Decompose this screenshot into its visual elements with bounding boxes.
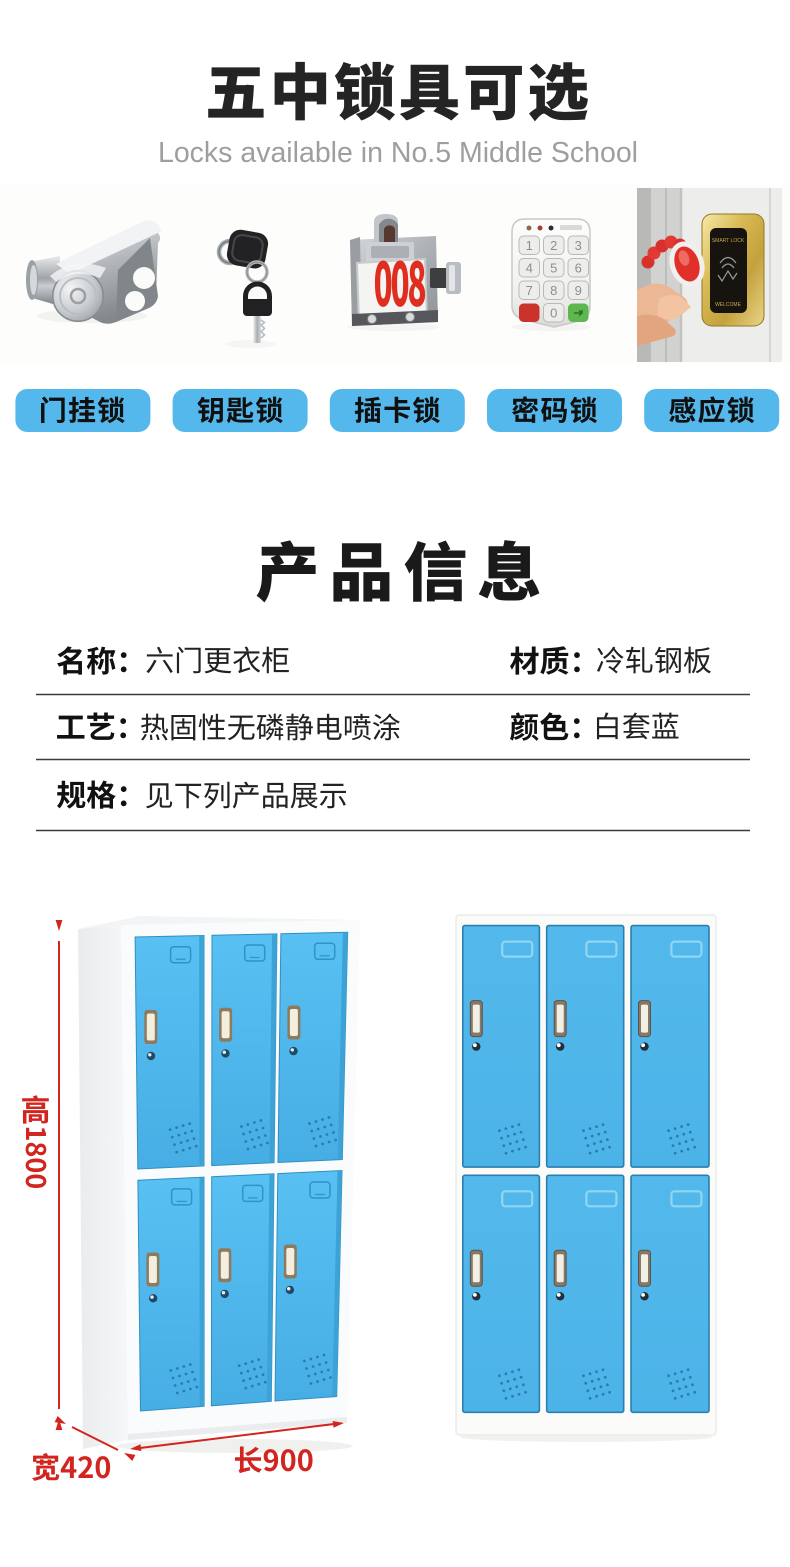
- svg-text:6: 6: [575, 261, 582, 276]
- svg-text:WELCOME: WELCOME: [715, 302, 742, 308]
- svg-text:Locks available in No.5 Middle: Locks available in No.5 Middle School: [158, 137, 638, 169]
- svg-text:0: 0: [550, 306, 557, 321]
- svg-text:7: 7: [526, 283, 533, 298]
- svg-text:5: 5: [550, 261, 557, 276]
- svg-text:2: 2: [550, 238, 557, 253]
- svg-text:3: 3: [575, 238, 582, 253]
- svg-text:9: 9: [575, 283, 582, 298]
- svg-text:1: 1: [526, 238, 533, 253]
- svg-text:SMART LOCK: SMART LOCK: [712, 238, 745, 244]
- svg-text:8: 8: [550, 283, 557, 298]
- svg-text:4: 4: [526, 261, 533, 276]
